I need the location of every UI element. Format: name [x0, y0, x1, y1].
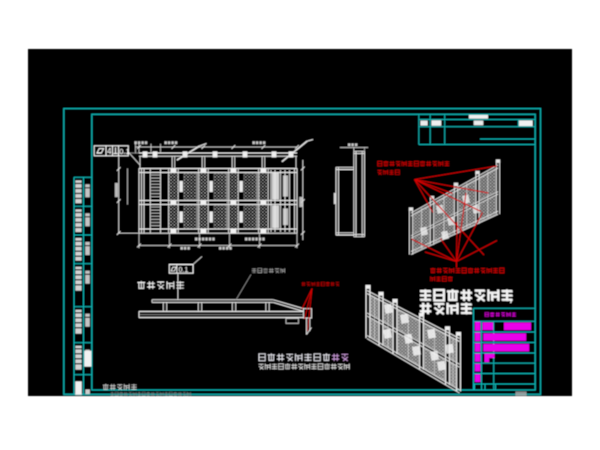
- svg-text:4: 4: [107, 147, 112, 156]
- svg-text:0.1: 0.1: [119, 147, 129, 156]
- svg-text:0.1: 0.1: [179, 267, 189, 274]
- svg-text:,: ,: [509, 289, 513, 304]
